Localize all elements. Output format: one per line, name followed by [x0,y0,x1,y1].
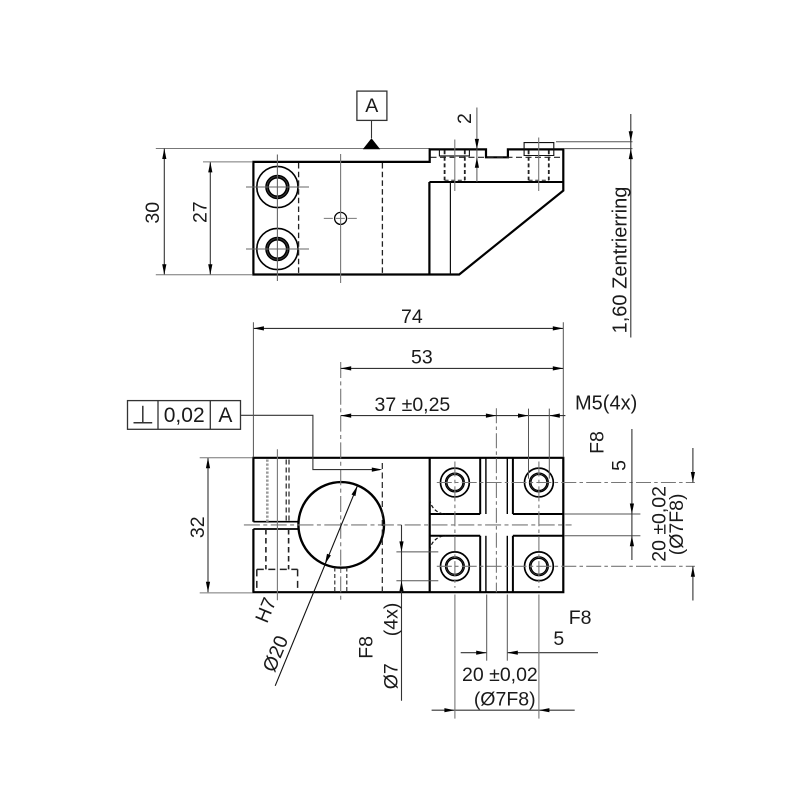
svg-text:(4x): (4x) [380,603,402,637]
svg-text:0,02: 0,02 [164,404,205,427]
svg-text:37 ±0,25: 37 ±0,25 [375,394,451,416]
svg-text:5: 5 [553,628,564,650]
svg-text:2: 2 [454,113,476,124]
svg-text:32: 32 [187,516,209,538]
svg-text:20 ±0,02: 20 ±0,02 [462,664,538,686]
svg-text:M5(4x): M5(4x) [575,393,637,415]
svg-text:27: 27 [190,201,212,223]
svg-text:53: 53 [411,346,433,368]
svg-text:A: A [365,95,378,117]
svg-text:30: 30 [142,202,164,224]
svg-text:F8: F8 [569,607,592,629]
svg-text:(Ø7F8): (Ø7F8) [666,494,688,556]
svg-text:A: A [218,404,232,427]
svg-text:(Ø7F8): (Ø7F8) [474,688,536,710]
svg-text:Ø7: Ø7 [380,663,402,689]
svg-text:F8: F8 [355,636,377,659]
svg-text:F8: F8 [586,431,608,454]
svg-text:74: 74 [401,306,423,328]
svg-text:5: 5 [608,460,630,471]
svg-text:1,60 Zentrierring: 1,60 Zentrierring [610,187,632,334]
